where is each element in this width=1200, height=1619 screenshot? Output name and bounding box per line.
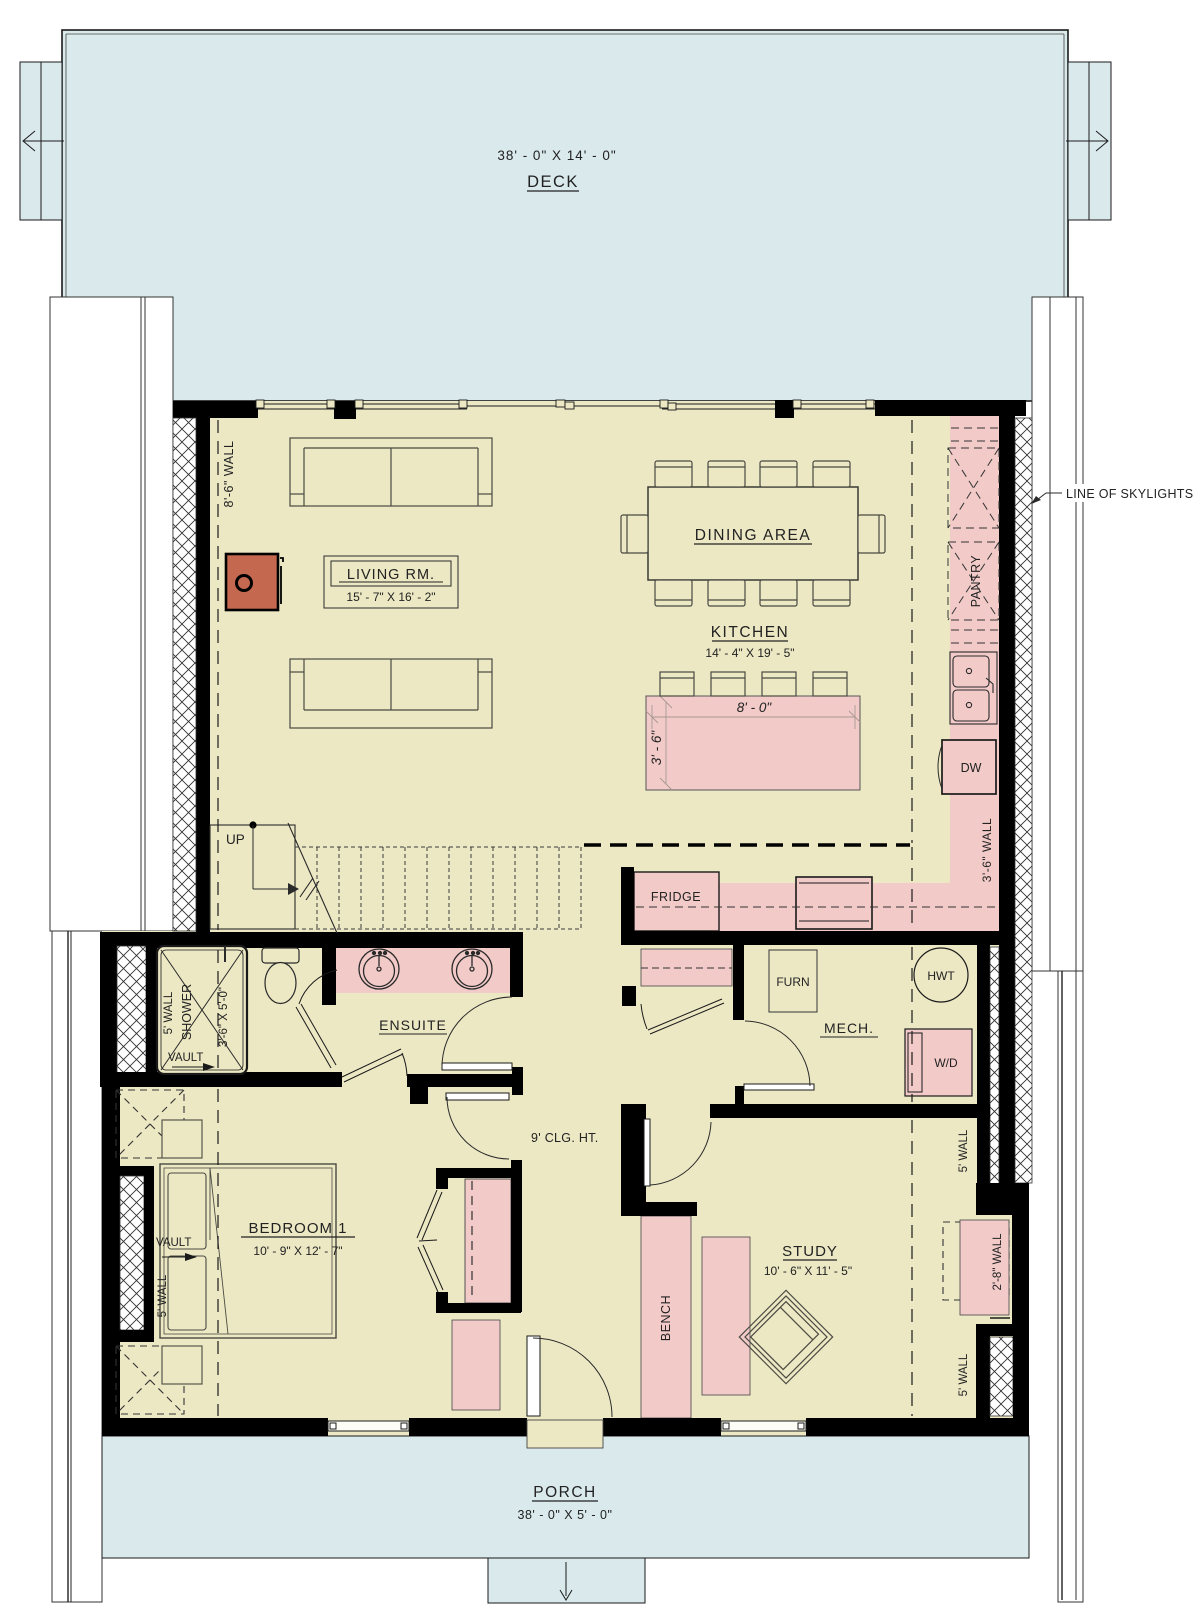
svg-text:5' WALL: 5' WALL [157, 1274, 169, 1317]
svg-text:5' WALL: 5' WALL [958, 1129, 970, 1172]
svg-text:8' - 0": 8' - 0" [737, 700, 773, 715]
svg-text:5' WALL: 5' WALL [958, 1353, 970, 1396]
svg-text:W/D: W/D [934, 1056, 958, 1070]
svg-text:MECH.: MECH. [824, 1020, 874, 1036]
svg-text:VAULT: VAULT [156, 1237, 191, 1249]
svg-text:3'-6" WALL: 3'-6" WALL [980, 818, 994, 882]
svg-text:FRIDGE: FRIDGE [651, 890, 701, 904]
svg-text:PANTRY: PANTRY [969, 555, 983, 608]
svg-text:UP: UP [226, 832, 245, 847]
svg-text:VAULT: VAULT [168, 1052, 203, 1064]
svg-text:14' - 4" X 19' - 5": 14' - 4" X 19' - 5" [705, 646, 794, 660]
svg-text:DINING AREA: DINING AREA [695, 527, 811, 544]
svg-text:KITCHEN: KITCHEN [711, 624, 790, 641]
svg-text:5' WALL: 5' WALL [163, 991, 175, 1034]
svg-text:LINE OF SKYLIGHTS: LINE OF SKYLIGHTS [1066, 487, 1193, 501]
svg-text:38' - 0" X 14' - 0": 38' - 0" X 14' - 0" [497, 148, 616, 163]
svg-text:38' - 0" X 5' - 0": 38' - 0" X 5' - 0" [518, 1508, 613, 1522]
svg-text:3'-6" X 5'-0": 3'-6" X 5'-0" [218, 987, 230, 1047]
svg-text:10' - 9" X 12' - 7": 10' - 9" X 12' - 7" [253, 1244, 342, 1258]
svg-text:2'-8" WALL: 2'-8" WALL [992, 1233, 1004, 1291]
svg-text:DECK: DECK [527, 173, 579, 191]
svg-text:BEDROOM 1: BEDROOM 1 [248, 1220, 347, 1237]
svg-text:ENSUITE: ENSUITE [379, 1017, 447, 1033]
svg-text:8'-6" WALL: 8'-6" WALL [222, 441, 236, 508]
svg-text:10' - 6" X 11' - 5": 10' - 6" X 11' - 5" [764, 1264, 852, 1278]
svg-text:SHOWER: SHOWER [180, 984, 194, 1040]
svg-text:DW: DW [961, 761, 982, 775]
svg-text:STUDY: STUDY [782, 1243, 838, 1260]
svg-text:BENCH: BENCH [659, 1295, 673, 1341]
svg-text:PORCH: PORCH [533, 1484, 596, 1501]
svg-text:LIVING RM.: LIVING RM. [347, 567, 435, 583]
svg-text:3' - 6": 3' - 6" [649, 730, 664, 766]
svg-text:FURN: FURN [776, 975, 809, 989]
svg-text:15' - 7" X 16' - 2": 15' - 7" X 16' - 2" [346, 590, 435, 604]
svg-text:HWT: HWT [927, 969, 955, 983]
svg-text:9' CLG. HT.: 9' CLG. HT. [531, 1131, 599, 1145]
